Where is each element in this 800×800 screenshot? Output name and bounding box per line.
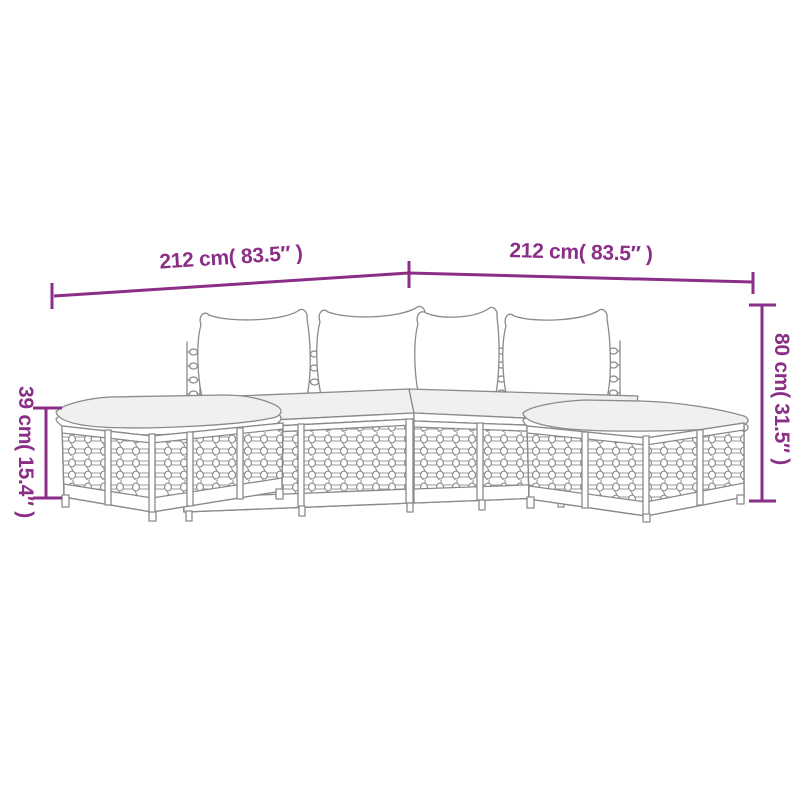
- product-dimension-diagram: 212 cm( 83.5″ ) 212 cm( 83.5″ ) 80 cm( 3…: [0, 0, 800, 800]
- width-dimension-ticks: [52, 261, 753, 309]
- dimension-label-height: 80 cm( 31.5″ ): [769, 333, 793, 465]
- right-ottoman: [523, 400, 748, 522]
- sofa-set-illustration: [0, 0, 800, 800]
- dimension-label-width-right: 212 cm( 83.5″ ): [509, 239, 653, 267]
- dimension-label-seat-height: 39 cm( 15.4″ ): [13, 386, 37, 518]
- width-dimension-line: [54, 273, 753, 296]
